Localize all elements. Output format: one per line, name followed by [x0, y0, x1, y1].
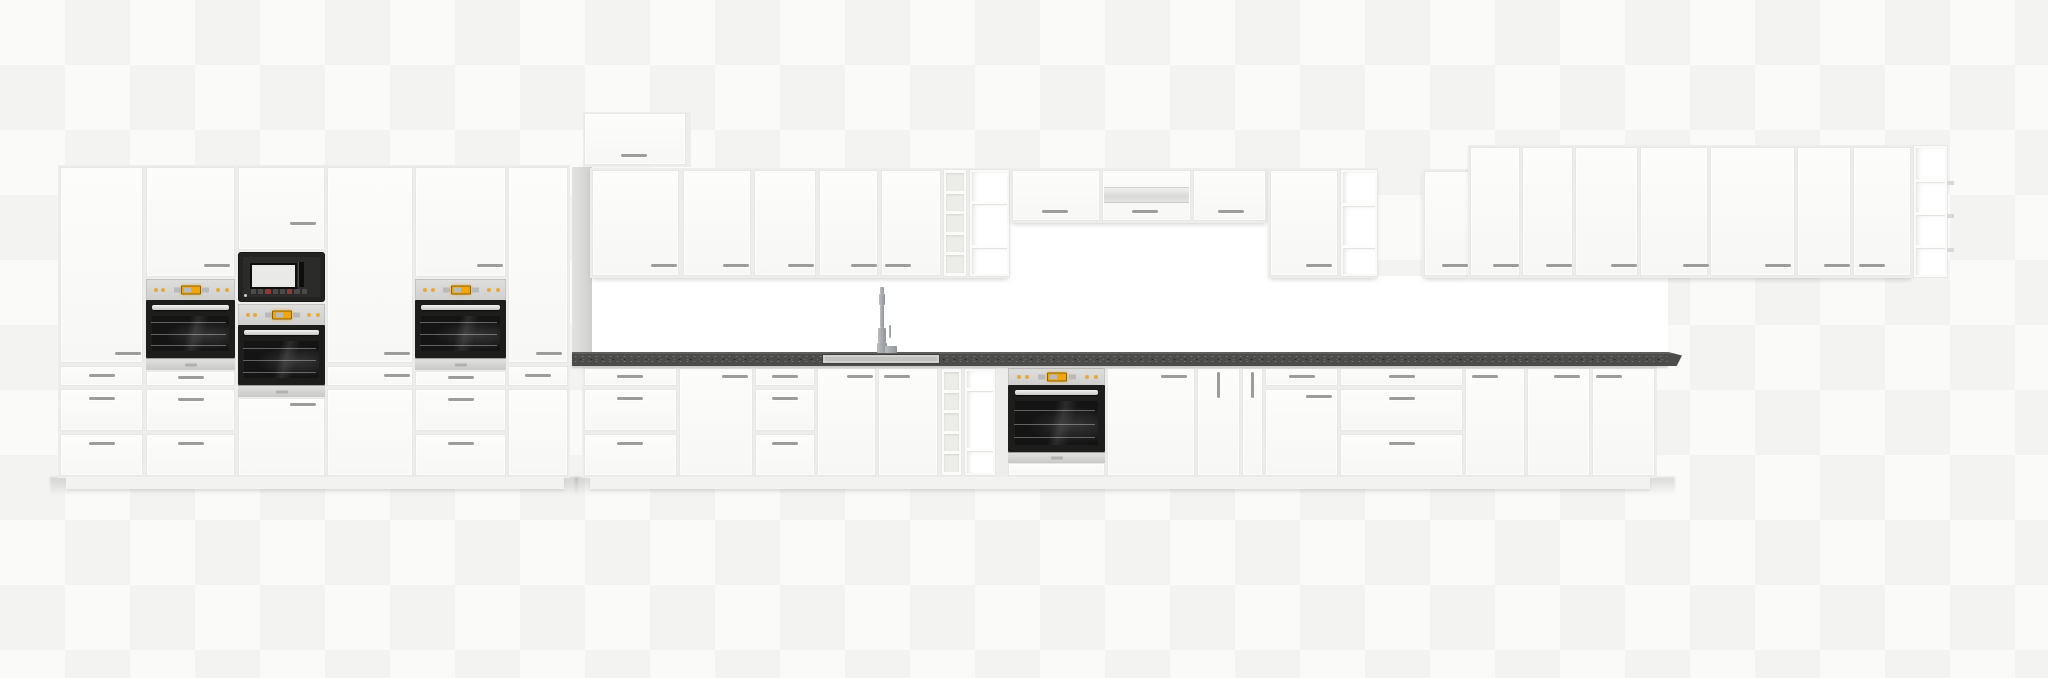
door-handle: [1824, 264, 1850, 267]
door-handle: [723, 264, 749, 267]
oven-handle-bar: [421, 305, 499, 310]
oven-housing-door: [146, 167, 235, 277]
door-handle: [651, 264, 677, 267]
door-handle: [1611, 264, 1637, 267]
built-in-oven: [415, 279, 506, 370]
base-open-shelf: [964, 368, 996, 476]
drawer-front: [415, 371, 506, 386]
oven-rack-reflection: [151, 322, 226, 323]
shelf-compartment: [972, 172, 1007, 201]
built-in-microwave: [238, 252, 325, 302]
microwave-button: [280, 289, 285, 294]
wall-cabinet-door: [683, 170, 751, 276]
door-handle: [89, 374, 115, 377]
door-handle: [384, 374, 410, 377]
door-handle: [788, 264, 814, 267]
oven-indicator-light: [225, 288, 229, 292]
base-cabinet-door: [1465, 368, 1525, 476]
oven-button: [454, 288, 461, 293]
oven-handle-bar: [152, 305, 229, 310]
drawer-front: [60, 389, 143, 431]
wall-cabinet-door: [1424, 171, 1469, 276]
oven-logo: [276, 390, 288, 393]
wine-rack-compartment: [944, 454, 959, 472]
oven-control-panel: [146, 279, 235, 301]
door-handle: [1217, 372, 1220, 398]
oven-indicator-light: [253, 313, 257, 317]
shelf-compartment: [1916, 216, 1945, 245]
faucet-part: [889, 325, 891, 338]
built-in-oven: [146, 279, 235, 370]
oven-handle-bar: [1015, 390, 1098, 395]
oven-bottom-trim: [1008, 452, 1105, 463]
microwave-button: [251, 289, 256, 294]
drawer-front: [584, 368, 677, 386]
oven-door: [1008, 385, 1105, 452]
door-handle: [1389, 442, 1415, 445]
oven-button: [1038, 375, 1045, 380]
door-handle: [1442, 264, 1468, 267]
oven-indicator-light: [423, 288, 427, 292]
door-handle: [1306, 395, 1332, 398]
shelf-compartment: [972, 249, 1007, 274]
microwave-button: [294, 289, 299, 294]
wall-cabinet-door: [1797, 147, 1851, 276]
drawer-front: [1340, 434, 1463, 476]
oven-indicator-light: [307, 313, 311, 317]
oven-control-panel: [238, 304, 325, 326]
faucet-part: [880, 305, 884, 328]
oven-rack-reflection: [1014, 410, 1096, 411]
top-box-door: [584, 113, 686, 165]
wall-cabinet-door: [881, 170, 941, 276]
oven-button: [276, 313, 283, 318]
door-handle: [621, 154, 647, 157]
door-handle: [772, 442, 798, 445]
wall-cabinet-door: [1012, 170, 1100, 221]
door-handle: [1389, 397, 1415, 400]
oven-rack-reflection: [420, 334, 496, 335]
wine-rack-compartment: [946, 214, 964, 232]
countertop-end-cap: [1668, 352, 1682, 366]
base-cabinet-door: [1242, 368, 1263, 476]
drawer-front: [584, 434, 677, 476]
base-cabinet-door: [1265, 389, 1338, 476]
door-handle: [1132, 210, 1158, 213]
wine-rack-compartment: [944, 372, 959, 390]
door-handle: [1218, 210, 1244, 213]
cabinet-door: [508, 389, 568, 476]
door-handle: [617, 442, 643, 445]
drawer-front: [60, 434, 143, 476]
drawer-front: [60, 366, 143, 386]
wall-cabinet-door: [1710, 147, 1795, 276]
oven-indicator-light: [216, 288, 220, 292]
oven-indicator-light: [487, 288, 491, 292]
wine-rack-compartment: [944, 393, 959, 411]
shelf-compartment: [967, 392, 993, 448]
shelf-compartment: [1916, 249, 1945, 275]
oven-logo: [185, 363, 197, 366]
door-handle: [1859, 264, 1885, 267]
wall-cabinet-door: [754, 170, 816, 276]
wine-rack-compartment: [944, 434, 959, 452]
door-handle: [204, 264, 230, 267]
door-handle: [847, 375, 873, 378]
door-handle: [115, 352, 141, 355]
wall-cabinet-door: [1270, 170, 1338, 276]
oven-button: [443, 288, 450, 293]
door-handle: [1596, 375, 1622, 378]
base-cabinet-door: [1592, 368, 1655, 476]
drawer-front: [415, 389, 506, 431]
door-handle: [448, 398, 474, 401]
oven-rack-reflection: [243, 348, 316, 349]
faucet-part: [879, 294, 885, 305]
plinth-base-run: [590, 477, 1650, 489]
wine-rack-compartment: [946, 194, 964, 212]
door-handle: [1042, 210, 1068, 213]
faucet-part: [880, 287, 884, 294]
door-handle: [536, 352, 562, 355]
shelf-compartment: [1916, 148, 1945, 179]
built-in-oven: [238, 304, 325, 397]
base-cabinet-door: [1107, 368, 1195, 476]
wall-cabinet-door: [1522, 147, 1573, 276]
microwave-button: [302, 289, 307, 294]
tall-cabinet-door: [60, 167, 143, 363]
door-handle: [1161, 375, 1187, 378]
cooker-hood: [1104, 187, 1189, 203]
drawer-front: [1265, 368, 1338, 386]
wall-cabinet-door: [1575, 147, 1638, 276]
shelf-compartment: [1343, 249, 1375, 274]
oven-rack-reflection: [420, 322, 496, 323]
oven-button: [293, 313, 300, 318]
door-handle: [772, 375, 798, 378]
oven-handle-bar: [244, 330, 319, 335]
wall-open-shelf: [1340, 169, 1378, 277]
plinth-left-run: [66, 477, 564, 489]
oven-button: [472, 288, 479, 293]
drawer-front: [508, 366, 568, 386]
door-handle: [178, 442, 204, 445]
drawer-front: [327, 366, 413, 386]
faucet-part: [885, 346, 897, 353]
base-cabinet-door: [1527, 368, 1590, 476]
base-cabinet-door: [1197, 368, 1240, 476]
side-filler-panel: [572, 167, 592, 353]
door-handle: [290, 403, 316, 406]
door-handle: [722, 375, 748, 378]
door-handle: [1554, 375, 1580, 378]
microwave-handle: [298, 262, 304, 287]
sink-cabinet-door: [878, 368, 938, 476]
shelf-side-tab: [1947, 248, 1954, 252]
oven-button: [202, 288, 209, 293]
oven-indicator-light: [1085, 375, 1089, 379]
door-handle: [1289, 375, 1315, 378]
oven-rack-reflection: [243, 372, 316, 373]
door-handle: [89, 397, 115, 400]
door-handle: [178, 376, 204, 379]
door-handle: [89, 442, 115, 445]
door-handle: [477, 264, 503, 267]
tall-cabinet-door: [508, 167, 568, 363]
oven-button: [174, 288, 181, 293]
drawer-front: [415, 434, 506, 476]
oven-button: [184, 288, 191, 293]
drawer-front: [584, 389, 677, 431]
oven-button: [1050, 375, 1057, 380]
door-handle: [617, 397, 643, 400]
oven-door: [238, 325, 325, 385]
tall-cabinet-door: [327, 167, 413, 363]
door-handle: [1389, 375, 1415, 378]
end-open-shelf: [1913, 145, 1948, 278]
wall-cabinet-door: [1853, 147, 1911, 276]
oven-rack-reflection: [1014, 437, 1096, 438]
oven-logo: [455, 363, 467, 366]
shelf-compartment: [972, 205, 1007, 244]
drawer-front: [755, 434, 815, 476]
oven-indicator-light: [316, 313, 320, 317]
oven-control-panel: [1008, 368, 1105, 386]
door-handle: [1251, 372, 1254, 398]
microwave-button: [287, 289, 292, 294]
oven-door: [415, 300, 506, 358]
oven-door: [146, 300, 235, 358]
oven-rack-reflection: [151, 345, 226, 346]
door-handle: [1472, 375, 1498, 378]
oven-plinth-front: [1008, 463, 1105, 476]
shelf-compartment: [1916, 183, 1945, 212]
oven-indicator-light: [431, 288, 435, 292]
oven-indicator-light: [1025, 375, 1029, 379]
wine-rack-compartment: [946, 173, 964, 191]
door-handle: [1493, 264, 1519, 267]
oven-rack-reflection: [420, 345, 496, 346]
drawer-front: [755, 389, 815, 431]
base-wine-rack: [941, 368, 962, 476]
wine-rack-compartment: [944, 413, 959, 431]
sink: [822, 354, 940, 364]
microwave-window: [250, 263, 297, 289]
shelf-compartment: [967, 371, 993, 388]
oven-control-panel: [415, 279, 506, 301]
door-handle: [885, 264, 911, 267]
oven-button: [265, 313, 272, 318]
oven-bottom-trim: [146, 358, 235, 370]
door-handle: [384, 352, 410, 355]
wall-cabinet-door: [592, 170, 679, 276]
wine-rack-compartment: [946, 255, 964, 273]
oven-indicator-light: [496, 288, 500, 292]
faucet: [872, 287, 900, 353]
oven-button: [1069, 375, 1076, 380]
door-handle: [178, 398, 204, 401]
wall-wine-rack: [943, 169, 967, 277]
oven-housing-door: [415, 167, 506, 277]
oven-bottom-trim: [415, 358, 506, 370]
door-handle: [884, 375, 910, 378]
sink-cabinet-door: [817, 368, 876, 476]
built-in-oven: [1008, 368, 1105, 463]
base-cabinet-door: [679, 368, 753, 476]
shelf-compartment: [967, 452, 993, 473]
drawer-front: [146, 389, 235, 431]
drawer-front: [146, 371, 235, 386]
microwave-buttons: [251, 289, 307, 294]
microwave-button: [273, 289, 278, 294]
backsplash: [582, 276, 1668, 354]
microwave-housing-door: [238, 167, 325, 250]
door-handle: [448, 376, 474, 379]
drawer-front: [755, 368, 815, 386]
door-handle: [1306, 264, 1332, 267]
microwave-button: [265, 289, 270, 294]
shelf-compartment: [1343, 172, 1375, 203]
door-handle: [617, 375, 643, 378]
oven-rack-reflection: [151, 334, 226, 335]
oven-logo: [1051, 457, 1063, 460]
faucet-part: [878, 328, 886, 343]
door-handle: [290, 222, 316, 225]
oven-indicator-light: [1094, 375, 1098, 379]
oven-indicator-light: [161, 288, 165, 292]
wall-cabinet-door: [1193, 170, 1266, 221]
oven-rack-reflection: [1014, 424, 1096, 425]
wall-cabinet-door: [819, 170, 878, 276]
door-handle: [1765, 264, 1791, 267]
oven-bottom-trim: [238, 385, 325, 397]
drawer-front: [1340, 389, 1463, 431]
countertop: [572, 352, 1668, 366]
wall-cabinet-door: [1640, 147, 1708, 276]
door-handle: [525, 374, 551, 377]
door-handle: [448, 442, 474, 445]
shelf-compartment: [1343, 207, 1375, 244]
microwave-button: [258, 289, 263, 294]
drawer-front: [1340, 368, 1463, 386]
wall-cabinet-door: [1470, 147, 1520, 276]
wine-rack-compartment: [946, 235, 964, 253]
oven-indicator-light: [1017, 375, 1021, 379]
kitchen-elevation-render: [0, 0, 2048, 678]
door-handle: [1546, 264, 1572, 267]
cabinet-door: [238, 398, 325, 476]
oven-indicator-light: [246, 313, 250, 317]
shelf-side-tab: [1947, 214, 1954, 218]
door-handle: [851, 264, 877, 267]
wall-open-shelf: [969, 169, 1010, 277]
drawer-front: [146, 434, 235, 476]
cabinet-door: [327, 389, 413, 476]
oven-rack-reflection: [243, 360, 316, 361]
oven-indicator-light: [154, 288, 158, 292]
shelf-side-tab: [1947, 181, 1954, 185]
door-handle: [772, 397, 798, 400]
door-handle: [1683, 264, 1709, 267]
backsplash-hood-zone: [1008, 222, 1270, 278]
